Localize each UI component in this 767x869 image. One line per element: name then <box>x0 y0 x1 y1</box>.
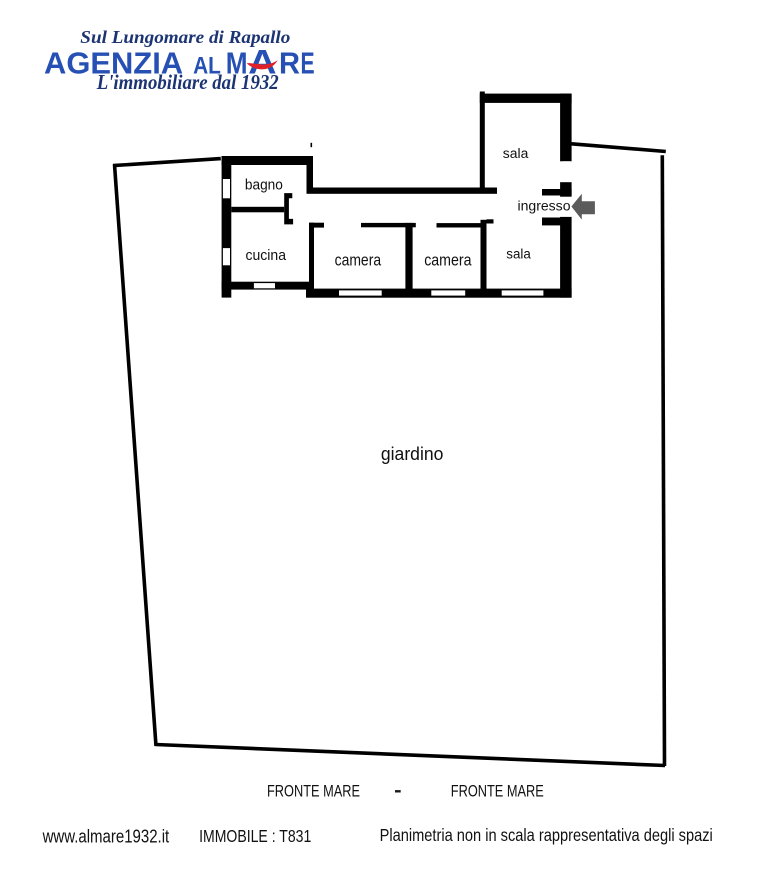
svg-text:cucina: cucina <box>246 247 287 264</box>
svg-text:R: R <box>279 45 300 80</box>
svg-text:giardino: giardino <box>381 443 444 464</box>
svg-text:ingresso: ingresso <box>518 199 571 215</box>
svg-text:L'immobiliare dal 1932: L'immobiliare dal 1932 <box>96 70 279 94</box>
svg-text:Planimetria non in scala rappr: Planimetria non in scala rappresentativa… <box>380 825 713 845</box>
svg-text:sala: sala <box>506 246 531 262</box>
svg-text:FRONTE MARE: FRONTE MARE <box>267 781 360 800</box>
svg-text:www.almare1932.it: www.almare1932.it <box>42 825 170 846</box>
svg-text:FRONTE MARE: FRONTE MARE <box>451 781 544 800</box>
svg-text:camera: camera <box>335 250 382 269</box>
svg-text:IMMOBILE : T831: IMMOBILE : T831 <box>199 826 311 846</box>
svg-text:sala: sala <box>503 146 529 162</box>
svg-text:camera: camera <box>424 250 472 269</box>
svg-text:E: E <box>301 45 315 80</box>
svg-text:bagno: bagno <box>245 178 283 194</box>
